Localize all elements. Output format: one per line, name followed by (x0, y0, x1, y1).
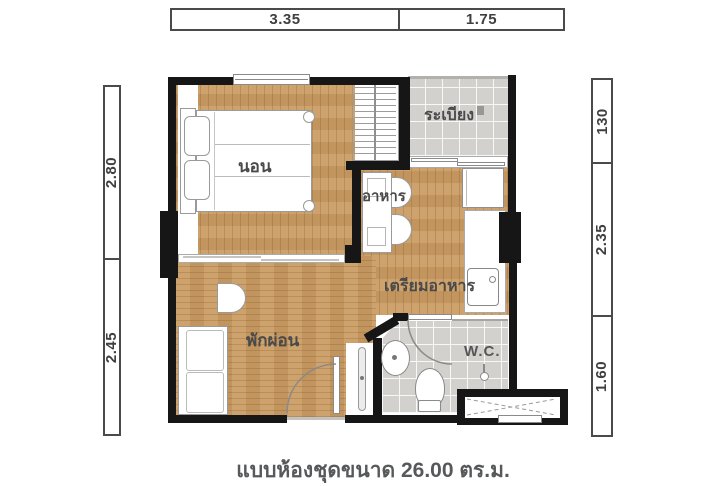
ledge-sill (498, 415, 542, 423)
side-chair (217, 283, 246, 313)
shaft-knob (360, 376, 364, 380)
bed-post-top (303, 111, 315, 123)
sliding-panel-right (457, 162, 505, 166)
washbasin-drain (392, 355, 397, 360)
shower-pipe (483, 364, 485, 373)
dim-right-2: 2.35 (593, 164, 611, 317)
fridge (462, 168, 504, 208)
sink-drain (489, 276, 496, 283)
shower-mixer (480, 372, 489, 381)
bedroom-label: นอน (238, 153, 271, 180)
dimension-bar-left: 2.80 2.45 (103, 85, 121, 436)
sofa-cushion-1 (186, 330, 224, 371)
wardrobe-right-wall (399, 77, 410, 170)
bottom-wall-mid (345, 415, 465, 423)
bathroom-left-wall (373, 338, 382, 415)
kitchen-label: เตรียมอาหาร (384, 274, 475, 299)
bed-sheet-fold (214, 112, 215, 210)
dining-label: อาหาร (362, 184, 406, 208)
wc-glass-line (452, 319, 508, 321)
floor-plan-page: 3.35 1.75 2.80 2.45 130 2.35 1.60 (0, 0, 720, 486)
bed-post-bottom (303, 200, 315, 212)
partition-track-1 (183, 256, 261, 258)
fridge-door-line (466, 170, 467, 206)
bed-pillow-2 (184, 160, 210, 200)
dim-right-1: 130 (593, 80, 611, 164)
plan-caption: แบบห้องชุดขนาด 26.00 ตร.ม. (0, 454, 720, 486)
bed-sheet-line-1 (214, 144, 310, 145)
balcony-label: ระเบียง (424, 103, 474, 128)
wc-door-leaf (408, 314, 452, 320)
wc-label: W.C. (464, 343, 501, 360)
balcony-rail (408, 76, 510, 79)
dining-wall-stub (345, 245, 361, 263)
right-wall-upper (508, 75, 516, 212)
dim-right-3: 1.60 (593, 317, 611, 435)
dim-top-2: 1.75 (400, 10, 563, 29)
toilet-tank (418, 400, 441, 412)
dim-left-1: 2.80 (105, 87, 119, 260)
partition-track-2 (261, 259, 339, 261)
dim-top-1: 3.35 (172, 10, 400, 29)
place-setting-2 (367, 227, 386, 246)
bottom-wall-left (168, 415, 287, 423)
balcony-drain (477, 106, 484, 115)
living-label: พักผ่อน (246, 327, 299, 354)
dimension-bar-right: 130 2.35 1.60 (591, 78, 613, 437)
entrance-threshold (287, 417, 345, 420)
bedroom-window-mullion (235, 79, 308, 80)
right-pillar (499, 212, 521, 263)
bed-pillow-1 (184, 116, 210, 156)
left-column (160, 211, 178, 278)
dimension-bar-top: 3.35 1.75 (170, 8, 565, 31)
dim-left-2: 2.45 (105, 260, 119, 434)
entrance-door-leaf (333, 356, 340, 414)
sofa-cushion-2 (186, 372, 224, 413)
sliding-panel-left (411, 158, 458, 162)
right-wall-lower (509, 263, 517, 389)
wardrobe-divider (374, 83, 376, 160)
